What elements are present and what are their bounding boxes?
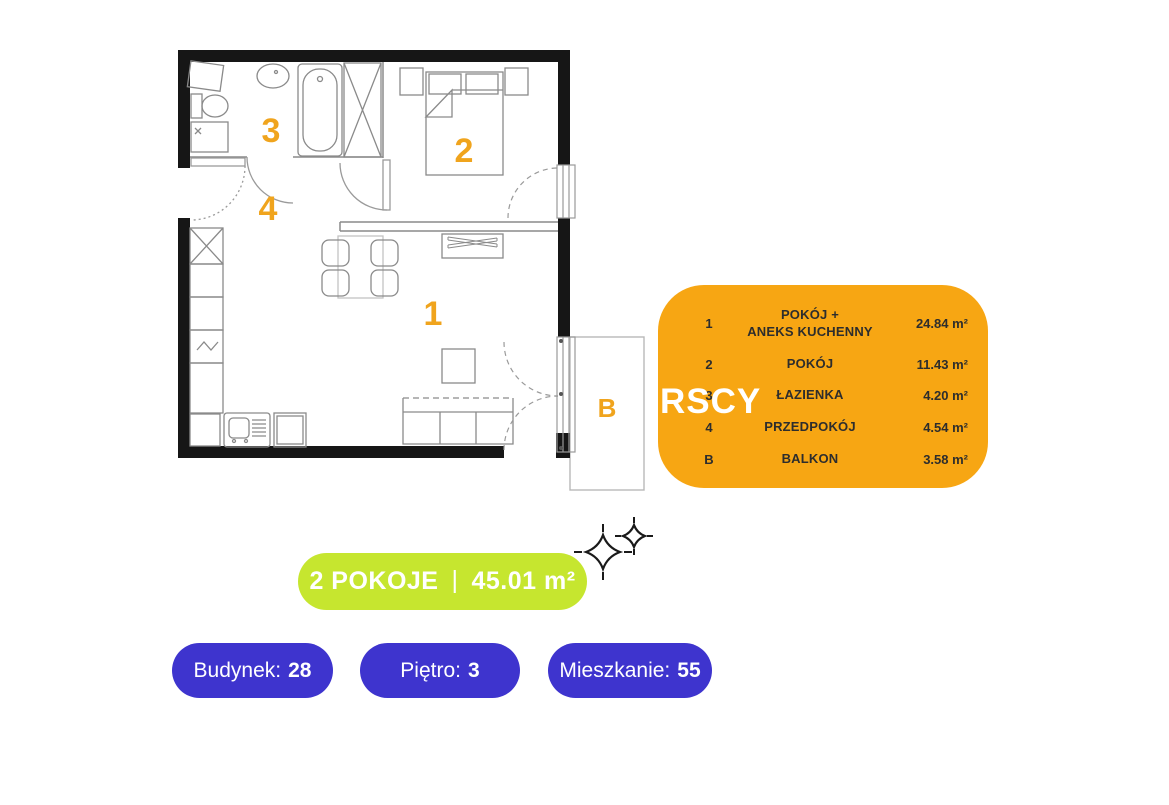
room-label-living: 1 [424, 295, 443, 333]
kitchen-sink [224, 413, 270, 447]
entrance-door [191, 158, 245, 220]
room-label-hall: 4 [259, 190, 278, 228]
living-room-furniture [322, 234, 513, 444]
legend-room-number: 4 [684, 420, 734, 435]
legend-room-number: B [684, 452, 734, 467]
apartment-flyer: 3 4 2 1 B 1 POKÓJ + ANEKS KUCHENNY 24.84… [0, 0, 1169, 805]
wardrobe [344, 63, 381, 157]
bathtub [298, 64, 342, 156]
legend-row: B BALKON 3.58 m² [684, 451, 968, 468]
legend-room-name: PRZEDPOKÓJ [734, 419, 886, 436]
tv-cabinet [442, 234, 503, 258]
legend-room-name: POKÓJ + ANEKS KUCHENNY [734, 307, 886, 341]
legend-room-name: POKÓJ [734, 356, 886, 373]
hob-symbol [197, 342, 218, 350]
legend-row: 4 PRZEDPOKÓJ 4.54 m² [684, 419, 968, 436]
legend-room-area: 11.43 m² [886, 357, 968, 372]
legend-room-name: BALKON [734, 451, 886, 468]
hall-wardrobe [190, 228, 223, 264]
sofa [403, 398, 513, 444]
dining-table [338, 236, 383, 298]
watermark: RSCY [660, 384, 761, 419]
kitchen-units [190, 228, 306, 447]
legend-room-area: 4.54 m² [886, 420, 968, 435]
washing-machine [191, 122, 228, 152]
room-label-bathroom: 3 [262, 112, 281, 150]
legend-room-area: 3.58 m² [886, 452, 968, 467]
bathroom-fixtures [187, 61, 381, 157]
legend-room-number: 2 [684, 357, 734, 372]
legend-room-area: 24.84 m² [886, 316, 968, 331]
nightstand-right [505, 68, 528, 95]
legend-room-area: 4.20 m² [886, 388, 968, 403]
bedroom-window [508, 165, 575, 218]
legend-row: 2 POKÓJ 11.43 m² [684, 356, 968, 373]
outer-walls [178, 50, 570, 458]
legend-row: 1 POKÓJ + ANEKS KUCHENNY 24.84 m² [684, 307, 968, 341]
sink [257, 64, 289, 88]
sparkles-icon [574, 517, 653, 580]
room-label-balcony: B [598, 393, 617, 423]
bedroom-door [340, 160, 390, 210]
room-label-bedroom: 2 [455, 132, 474, 170]
legend-room-number: 1 [684, 316, 734, 331]
nightstand-left [400, 68, 423, 95]
toilet [191, 94, 228, 118]
floor-plan-drawing: 3 4 2 1 B [0, 0, 1169, 805]
coffee-table [442, 349, 475, 383]
corner-shelf [187, 61, 223, 91]
dining-chairs [322, 240, 398, 296]
